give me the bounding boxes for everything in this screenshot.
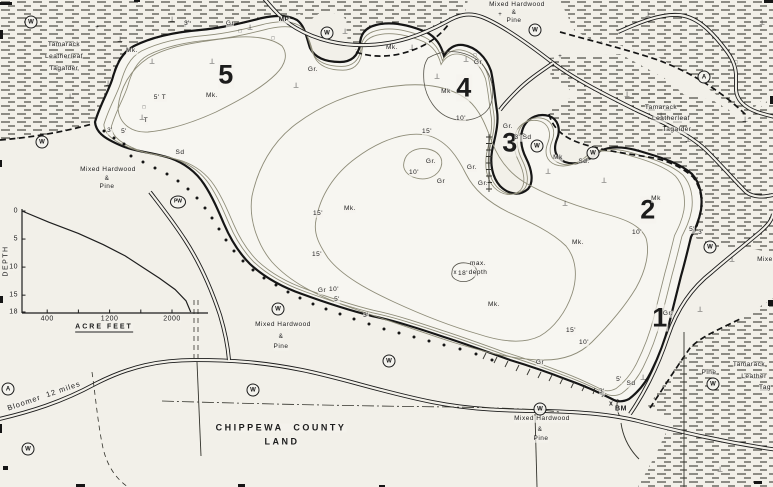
max-depth-label-line2: depth <box>469 270 488 277</box>
veg-label-mixed-hardwood-south-line2: & <box>279 334 284 341</box>
chart-y-tick-label: 18 <box>9 308 18 315</box>
depth-label: 10' <box>579 340 589 347</box>
veg-label-mixed-hardwood-southeast-line1: Mixed Hardwood <box>514 416 570 423</box>
inset-chart-y-axis-label: DEPTH <box>3 245 10 276</box>
snag-symbol: ⊥ <box>697 307 703 314</box>
depth-label: 15' <box>313 211 323 218</box>
circled-W-symbol: W <box>529 24 542 37</box>
depth-label: 5' T <box>154 95 167 102</box>
veg-label-pine-southeast: Pine <box>701 370 716 377</box>
circled-W-symbol: W <box>247 384 260 397</box>
depth-label: 5' <box>616 377 622 384</box>
depth-label: 3' <box>599 389 605 396</box>
substrate-label: Gr. <box>478 181 488 188</box>
depth-label: 5' <box>689 227 695 234</box>
marker-bm: BM <box>615 406 627 413</box>
circled-W-symbol: W <box>704 241 717 254</box>
circled-W-symbol: W <box>22 443 35 456</box>
depth-label: 10' <box>329 287 339 294</box>
snag-symbol: ⊥ <box>685 137 691 144</box>
max-depth-x-marker: x <box>454 270 457 276</box>
veg-label-tamarack-nw-line2: Leatherleaf <box>45 54 83 61</box>
snag-symbol: ⊥ <box>717 467 723 474</box>
structure-symbol: □ <box>142 106 145 111</box>
veg-label-mixed-hardwood-west-line1: Mixed Hardwood <box>80 167 136 174</box>
snag-symbol: ⊥ <box>562 201 568 208</box>
veg-label-tamarack-east-line3: Tagalder <box>663 127 692 134</box>
veg-label-tamarack-nw-line1: Tamarack <box>48 42 80 49</box>
circled-A-symbol: A <box>2 383 15 396</box>
substrate-label: Sd <box>176 150 185 157</box>
benchmark-x-marker: x <box>609 401 613 408</box>
substrate-label: Gr. <box>308 67 318 74</box>
snag-symbol: ⊥ <box>519 129 525 136</box>
max-depth-value: 18' <box>458 271 468 278</box>
county-land-label-line1: CHIPPEWA COUNTY <box>216 424 347 433</box>
substrate-label: Sd. <box>578 159 589 166</box>
substrate-label: Mk. <box>206 93 218 100</box>
substrate-label: Mk. <box>386 45 398 52</box>
snag-symbol: ⊥ <box>293 83 299 90</box>
cross-symbol: + <box>95 25 99 31</box>
depth-label: 10' <box>456 116 466 123</box>
depth-label: 15' <box>422 129 432 136</box>
cross-symbol: + <box>498 12 502 18</box>
depth-label: 10' <box>632 230 642 237</box>
veg-label-mixed-hardwood-west-line2: & <box>105 176 110 183</box>
snag-symbol: ⊥ <box>169 17 175 24</box>
veg-label-mixed-hardwood-north-line2: & <box>512 10 517 17</box>
veg-label-mixed-hardwood-south-line3: Pine <box>273 344 288 351</box>
snag-symbol: ⊥ <box>658 113 664 120</box>
circled-W-symbol: W <box>534 403 547 416</box>
veg-label-mixed-hardwood-west-line3: Pine <box>99 184 114 191</box>
depth-label: 3' Sd <box>514 135 531 142</box>
circled-W-symbol: W <box>531 140 544 153</box>
circled-W-symbol: W <box>36 136 49 149</box>
snag-symbol: ⊥ <box>545 169 551 176</box>
substrate-label: Mk. <box>488 302 500 309</box>
chart-x-tick-label: 2000 <box>163 316 181 323</box>
substrate-label: Gr. <box>663 311 673 318</box>
structure-symbol: □ <box>238 30 241 35</box>
substrate-label: Gr <box>437 179 445 186</box>
chart-y-tick-label: 15 <box>9 292 18 299</box>
depth-label: 15' <box>566 328 576 335</box>
veg-label-tamarack-nw-line3: Tagalder <box>50 66 79 73</box>
circled-A-symbol: A <box>698 71 711 84</box>
depth-label: 3' <box>698 230 704 237</box>
max-depth-label-line1: max. <box>470 261 486 268</box>
substrate-label: Mk. <box>126 48 138 55</box>
depth-label: 15' <box>312 252 322 259</box>
veg-label-mixed-hardwood-north-line1: Mixed Hardwood <box>489 2 545 9</box>
site-number-1: 1 <box>652 305 668 332</box>
veg-label-tamarack-se-line2: Leather <box>741 374 767 381</box>
veg-label-mixed-hardwood-southeast-line2: & <box>538 427 543 434</box>
substrate-label: Gr <box>536 360 544 367</box>
veg-label-mixed-hardwood-south-line1: Mixed Hardwood <box>255 322 311 329</box>
substrate-label: Mk <box>553 155 563 162</box>
veg-label-mixed-hardwood-north-line3: Pine <box>506 18 521 25</box>
substrate-label: Mk. <box>572 240 584 247</box>
snag-symbol: ⊥ <box>117 37 123 44</box>
substrate-label: Gr. <box>426 159 436 166</box>
snag-symbol: ⊥ <box>463 57 469 64</box>
depth-label: 3' <box>107 128 113 135</box>
site-number-5: 5 <box>218 62 234 89</box>
depth-label: 5' <box>121 129 127 136</box>
road-label-bloomer: Bloomer 12 miles <box>6 380 81 412</box>
substrate-label: Sd <box>627 381 636 388</box>
lake-survey-map: ACRE FEET DEPTH TamarackLeatherleafTagal… <box>0 0 773 487</box>
chart-y-tick-label: 5 <box>14 236 18 243</box>
substrate-label: Gr <box>318 288 326 295</box>
circled-W-symbol: W <box>587 147 600 160</box>
county-land-label-line2: LAND <box>265 438 300 447</box>
circled-W-symbol: W <box>272 303 285 316</box>
circled-W-symbol: W <box>707 378 720 391</box>
marker-mp: MP <box>279 17 290 24</box>
circled-W-symbol: W <box>383 355 396 368</box>
veg-label-tamarack-se-line1: Tamarack <box>733 362 765 369</box>
veg-label-tamarack-east-line1: Tamarack <box>645 105 677 112</box>
snag-symbol: ⊥ <box>67 94 73 101</box>
circled-PW-symbol: PW <box>170 196 186 209</box>
depth-label: 10' <box>409 170 419 177</box>
substrate-label: Gr <box>226 21 234 28</box>
chart-x-tick-label: 1200 <box>101 316 119 323</box>
veg-label-mixed-east-partial: Mixed <box>757 257 773 264</box>
chart-y-tick-label: 0 <box>14 208 18 215</box>
snag-symbol: ⊥ <box>742 117 748 124</box>
snag-symbol: ⊥ <box>342 29 348 36</box>
snag-symbol: ⊥ <box>729 257 735 264</box>
snag-symbol: ⊥ <box>105 81 111 88</box>
snag-symbol: ⊥ <box>139 115 145 122</box>
snag-symbol: ⊥ <box>247 25 253 32</box>
structure-symbol: □ <box>473 54 476 59</box>
snag-symbol: ⊥ <box>645 12 651 19</box>
snag-symbol: ⊥ <box>209 59 215 66</box>
snag-symbol: ⊥ <box>640 375 646 382</box>
substrate-label: Mk <box>651 196 661 203</box>
label-layer: ACRE FEET DEPTH TamarackLeatherleafTagal… <box>0 0 773 487</box>
snag-symbol: ⊥ <box>759 20 765 27</box>
substrate-label: Mk. <box>344 206 356 213</box>
site-number-4: 4 <box>456 75 472 102</box>
cross-symbol: + <box>558 54 562 60</box>
snag-symbol: ⊥ <box>624 92 630 99</box>
snag-symbol: ⊥ <box>601 178 607 185</box>
structure-symbol: □ <box>271 37 274 42</box>
veg-label-mixed-hardwood-southeast-line3: Pine <box>533 436 548 443</box>
veg-label-tamarack-se-line3: Tag <box>759 385 771 392</box>
chart-x-tick-label: 400 <box>41 316 54 323</box>
circled-W-symbol: W <box>25 16 38 29</box>
snag-symbol: ⊥ <box>409 45 415 52</box>
depth-label: 3' <box>363 313 369 320</box>
substrate-label: Gr. <box>503 124 513 131</box>
substrate-label: Gr <box>474 60 482 67</box>
depth-label: 3' <box>184 21 190 28</box>
chart-y-tick-label: 10 <box>9 264 18 271</box>
inset-chart-x-axis-label: ACRE FEET <box>75 324 133 333</box>
substrate-label: Mk <box>441 89 451 96</box>
structure-symbol: □ <box>734 61 737 66</box>
depth-label: 5' <box>334 297 340 304</box>
snag-symbol: ⊥ <box>434 74 440 81</box>
snag-symbol: ⊥ <box>149 59 155 66</box>
circled-W-symbol: W <box>321 27 334 40</box>
substrate-label: Gr. <box>467 165 477 172</box>
